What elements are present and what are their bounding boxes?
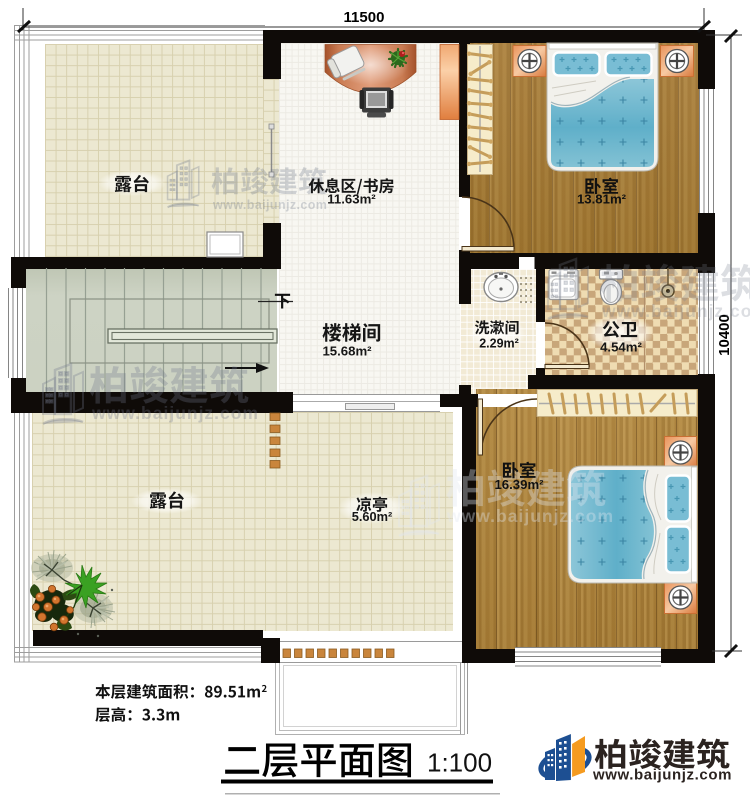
svg-text:15.68m²: 15.68m² [322,344,372,359]
svg-text:13.81m²: 13.81m² [577,192,627,207]
svg-text:www.baijunjz.com: www.baijunjz.com [592,767,732,784]
svg-text:2.29m²: 2.29m² [479,337,519,351]
svg-text:4.54m²: 4.54m² [600,340,642,355]
svg-text:www.baijunjz.com: www.baijunjz.com [212,198,327,212]
svg-text:1:100: 1:100 [427,748,492,778]
svg-text:www.baijunjz.com: www.baijunjz.com [91,403,259,423]
svg-text:11.63m²: 11.63m² [327,192,376,207]
svg-text:5.60m²: 5.60m² [352,509,393,524]
svg-text:16.39m²: 16.39m² [494,477,544,492]
svg-text:www.baijunjz.com: www.baijunjz.com [446,506,614,526]
svg-text:11500: 11500 [344,9,385,26]
